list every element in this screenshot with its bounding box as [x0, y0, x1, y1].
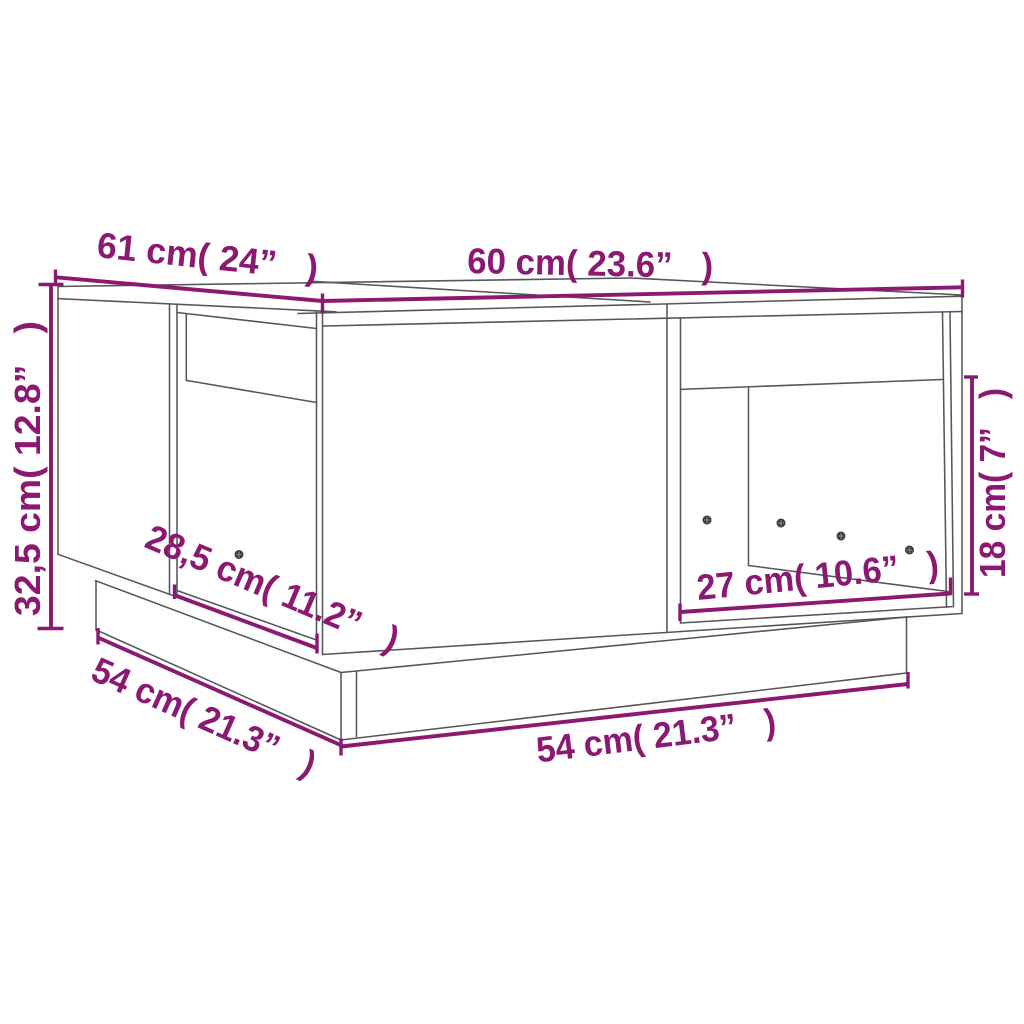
svg-text:18 cm( 7” ): 18 cm( 7” ) [972, 388, 1013, 578]
svg-text:32,5 cm( 12.8” ): 32,5 cm( 12.8” ) [7, 321, 48, 616]
svg-text:60 cm( 23.6” ): 60 cm( 23.6” ) [467, 240, 714, 286]
